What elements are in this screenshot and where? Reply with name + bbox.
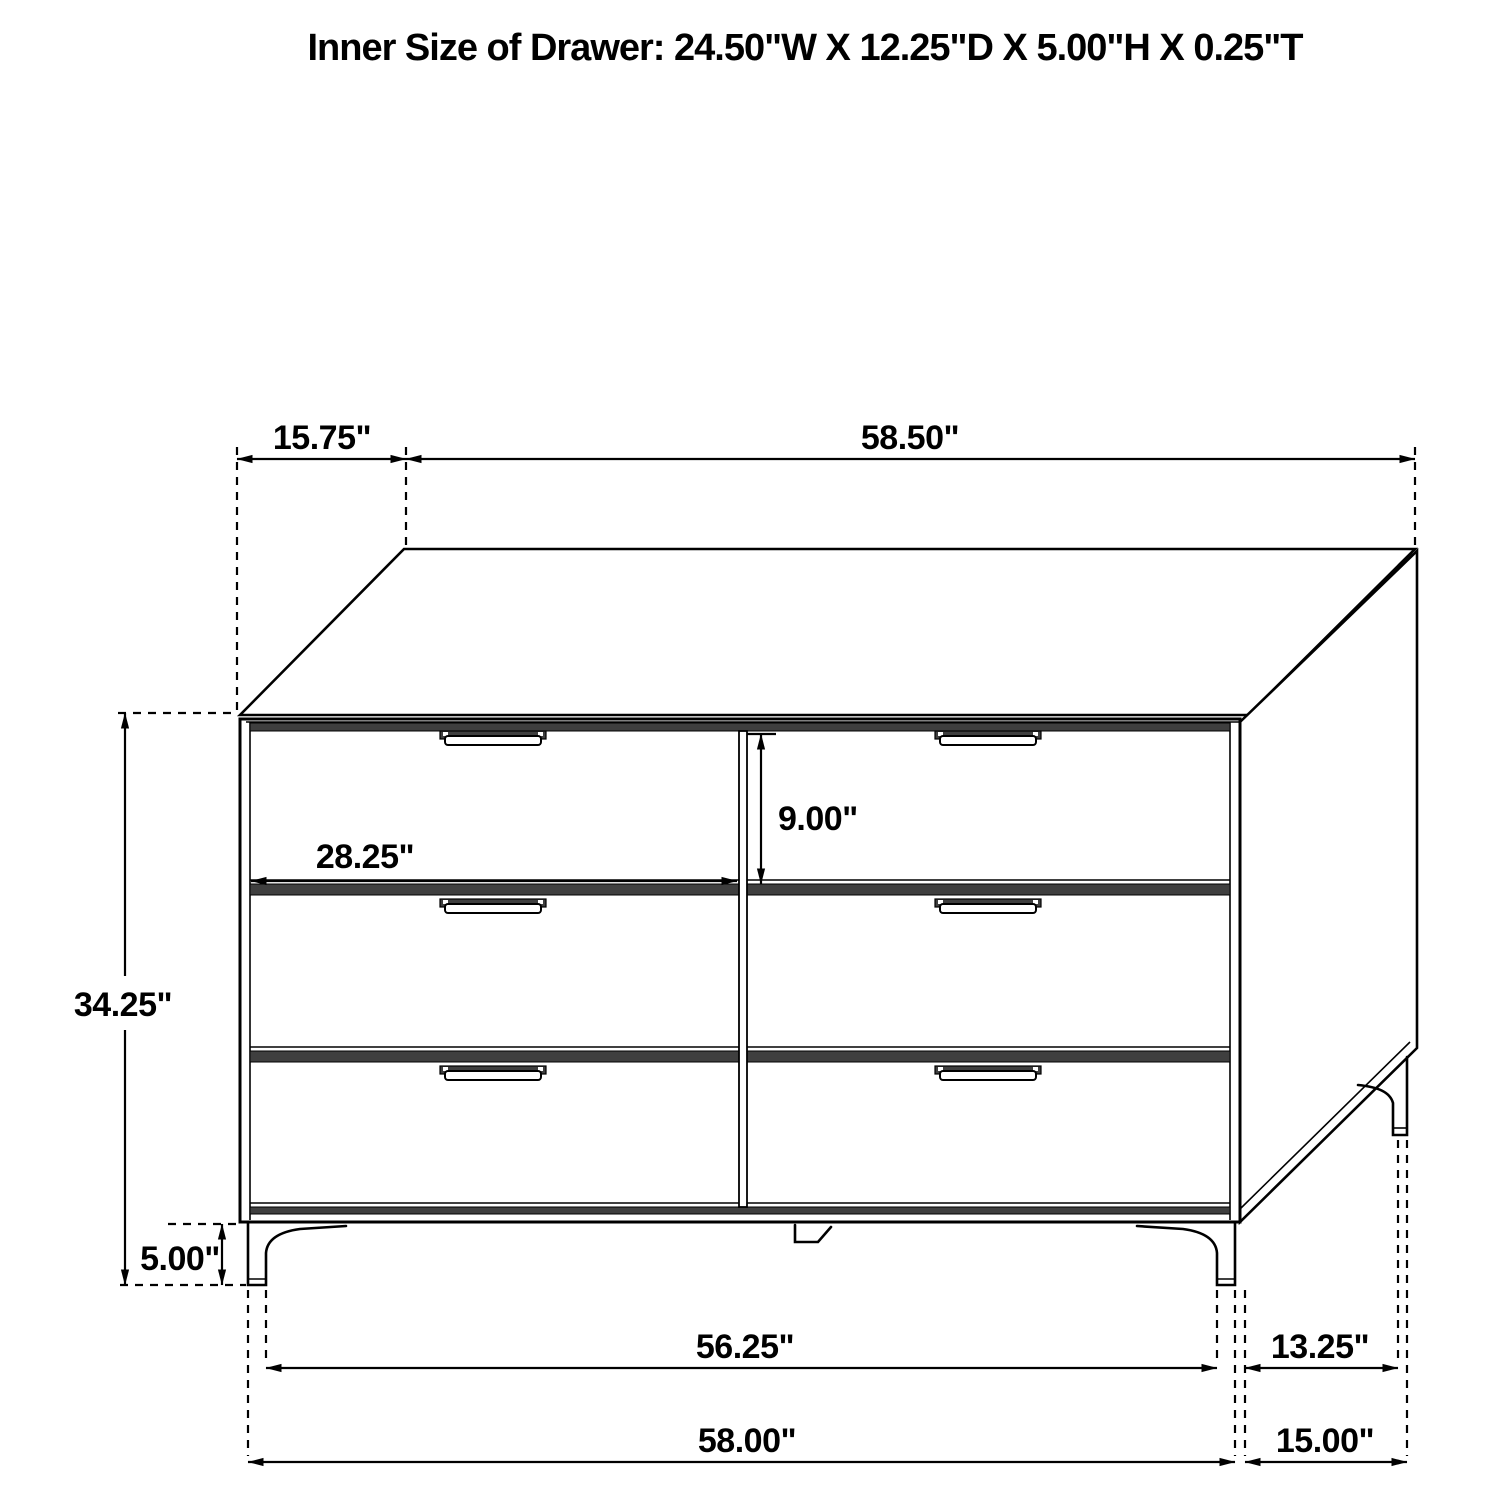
drawer-handle-top-right <box>935 731 1041 745</box>
dim-label-drawer-height: 9.00" <box>778 800 858 838</box>
drawer-handle-middle-right <box>935 899 1041 913</box>
front-right-leg <box>1137 1223 1235 1285</box>
dimension-front-overall-width: 58.00" <box>248 1422 1235 1462</box>
dim-label-side-depth-between-legs: 13.25" <box>1271 1328 1369 1366</box>
dresser-front-face <box>240 719 1240 1222</box>
furniture-dimension-diagram: Inner Size of Drawer: 24.50"W X 12.25"D … <box>0 0 1500 1500</box>
dim-label-leg-height: 5.00" <box>140 1240 220 1278</box>
dimension-side-depth-between-legs: 13.25" <box>1245 1328 1398 1368</box>
dim-label-drawer-width: 28.25" <box>316 838 414 876</box>
dimension-front-width-between-legs: 56.25" <box>266 1328 1217 1368</box>
bottom-shadow-band <box>250 1207 1230 1214</box>
center-glide <box>795 1225 831 1242</box>
dim-label-front-width-between-legs: 56.25" <box>696 1328 794 1366</box>
dimension-cabinet-height: 34.25" <box>58 713 246 1285</box>
dimension-leg-height: 5.00" <box>140 1224 242 1285</box>
drawer-handle-bottom-right <box>935 1066 1041 1080</box>
dresser-legs <box>248 1057 1407 1285</box>
center-divider <box>739 731 747 1207</box>
top-shadow-band <box>250 723 1230 731</box>
dim-label-side-overall-depth: 15.00" <box>1276 1422 1374 1460</box>
dim-label-top-depth-offset: 15.75" <box>273 419 371 457</box>
dimension-top-width: 58.50" <box>406 419 1415 459</box>
dimension-top-depth-offset: 15.75" <box>237 419 406 459</box>
dresser-top-face <box>240 549 1415 722</box>
dimension-side-overall-depth: 15.00" <box>1245 1422 1407 1462</box>
dimension-drawer-height: 9.00" <box>747 734 858 884</box>
dim-label-front-overall-width: 58.00" <box>698 1422 796 1460</box>
dresser-diagram-canvas: Inner Size of Drawer: 24.50"W X 12.25"D … <box>0 0 1500 1500</box>
dim-label-cabinet-height: 34.25" <box>74 986 172 1024</box>
top-face-panel <box>240 549 1415 715</box>
dresser-drawing <box>240 549 1417 1285</box>
dimension-drawer-width: 28.25" <box>251 838 737 881</box>
front-left-leg <box>248 1223 346 1285</box>
drawer-handle-top-left <box>440 731 546 745</box>
diagram-title: Inner Size of Drawer: 24.50"W X 12.25"D … <box>307 27 1303 69</box>
dim-label-top-width: 58.50" <box>861 419 959 457</box>
drawer-handle-middle-left <box>440 899 546 913</box>
drawer-handle-bottom-left <box>440 1066 546 1080</box>
